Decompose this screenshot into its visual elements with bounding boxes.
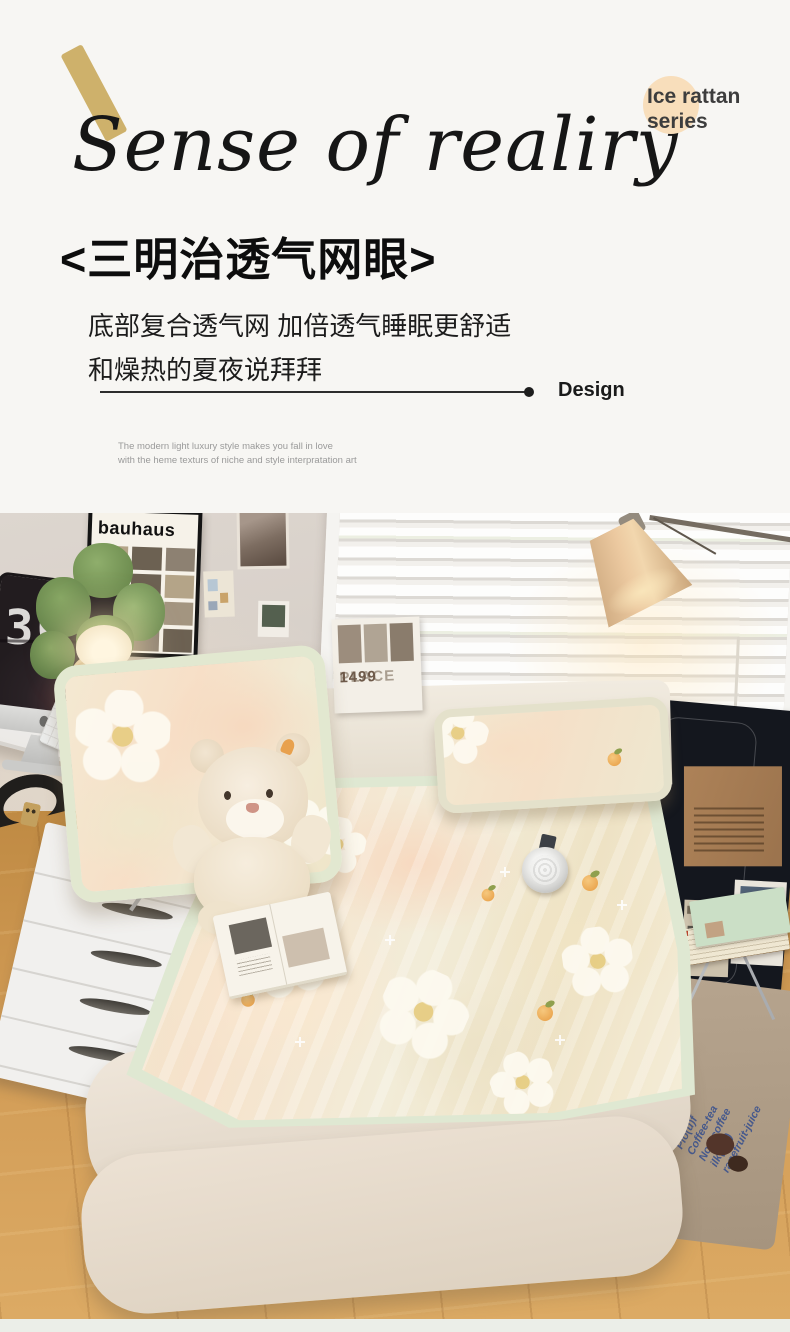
pillow-flat bbox=[433, 696, 673, 814]
design-label: Design bbox=[558, 379, 625, 402]
wall-photo-print bbox=[236, 513, 289, 569]
orange-motif bbox=[582, 875, 598, 891]
daisy-flower bbox=[483, 1043, 564, 1124]
design-divider: Design bbox=[100, 378, 660, 404]
kraft-paper-note bbox=[684, 766, 782, 866]
product-page: Sense of realiry Ice rattan series <三明治透… bbox=[0, 0, 790, 1332]
poster-photo bbox=[164, 575, 194, 599]
sparkle-motif bbox=[385, 935, 395, 945]
daisy-flower bbox=[558, 922, 637, 1001]
daisy-flower bbox=[73, 688, 172, 787]
divider-line bbox=[100, 391, 528, 393]
window-sill-card: PLACE 1499 bbox=[331, 616, 422, 713]
orange-leaf bbox=[589, 869, 601, 879]
bear-eye bbox=[266, 789, 273, 798]
feature-heading: <三明治透气网眼> bbox=[60, 223, 437, 288]
series-badge-line1: Ice rattan bbox=[647, 85, 740, 108]
bear-eye bbox=[224, 791, 231, 800]
card-photo bbox=[338, 625, 362, 664]
booklet-text-lines bbox=[236, 953, 273, 976]
poster-title: bauhaus bbox=[98, 517, 193, 541]
bear-nose bbox=[246, 803, 259, 813]
measuring-tape bbox=[518, 835, 572, 897]
drawer-handle bbox=[79, 995, 152, 1018]
card-photo bbox=[390, 623, 414, 662]
style-caption: The modern light luxury style makes you … bbox=[118, 440, 357, 469]
orange-leaf bbox=[487, 884, 496, 892]
mini-card-photo bbox=[262, 605, 285, 627]
tape-rings bbox=[530, 855, 560, 885]
style-caption-line2: with the heme texturs of niche and style… bbox=[118, 455, 357, 466]
booklet-photo bbox=[282, 928, 330, 968]
book-cover-photo bbox=[705, 921, 725, 939]
page-title: Sense of realiry bbox=[72, 102, 679, 188]
card-number: 1499 bbox=[339, 668, 377, 686]
drawer-handle bbox=[90, 947, 163, 970]
orange-motif bbox=[607, 752, 621, 766]
feature-description-line1: 底部复合透气网 加倍透气睡眠更舒适 bbox=[88, 311, 511, 341]
sparkle-motif bbox=[555, 1035, 565, 1045]
daisy-flower bbox=[365, 955, 481, 1071]
sparkle-motif bbox=[500, 867, 510, 877]
style-caption-line1: The modern light luxury style makes you … bbox=[118, 441, 333, 452]
booklet-photo bbox=[229, 917, 272, 954]
sparkle-motif bbox=[295, 1037, 305, 1047]
sparkle-motif bbox=[617, 900, 627, 910]
series-badge-line2: series bbox=[647, 110, 708, 133]
wall-mini-card bbox=[258, 601, 290, 638]
footer-strip bbox=[0, 1319, 790, 1332]
card-photo-strip bbox=[338, 623, 415, 664]
card-photo bbox=[364, 624, 388, 663]
photo-print-image bbox=[240, 513, 287, 566]
orange-motif bbox=[482, 889, 495, 902]
orange-leaf bbox=[544, 999, 556, 1009]
orange-leaf bbox=[613, 747, 623, 756]
divider-dot-icon bbox=[524, 387, 534, 397]
series-badge: Ice rattan series bbox=[647, 84, 740, 134]
card-caption: PLACE 1499 bbox=[339, 667, 415, 670]
orange-motif bbox=[537, 1005, 553, 1021]
hero-section: Sense of realiry Ice rattan series <三明治透… bbox=[0, 0, 790, 513]
wall-clipping bbox=[203, 570, 235, 617]
poster-photo bbox=[165, 548, 195, 572]
bedroom-product-photo: bauhaus Plo(u)f Coffee-tea Non-coffee il bbox=[0, 513, 790, 1319]
